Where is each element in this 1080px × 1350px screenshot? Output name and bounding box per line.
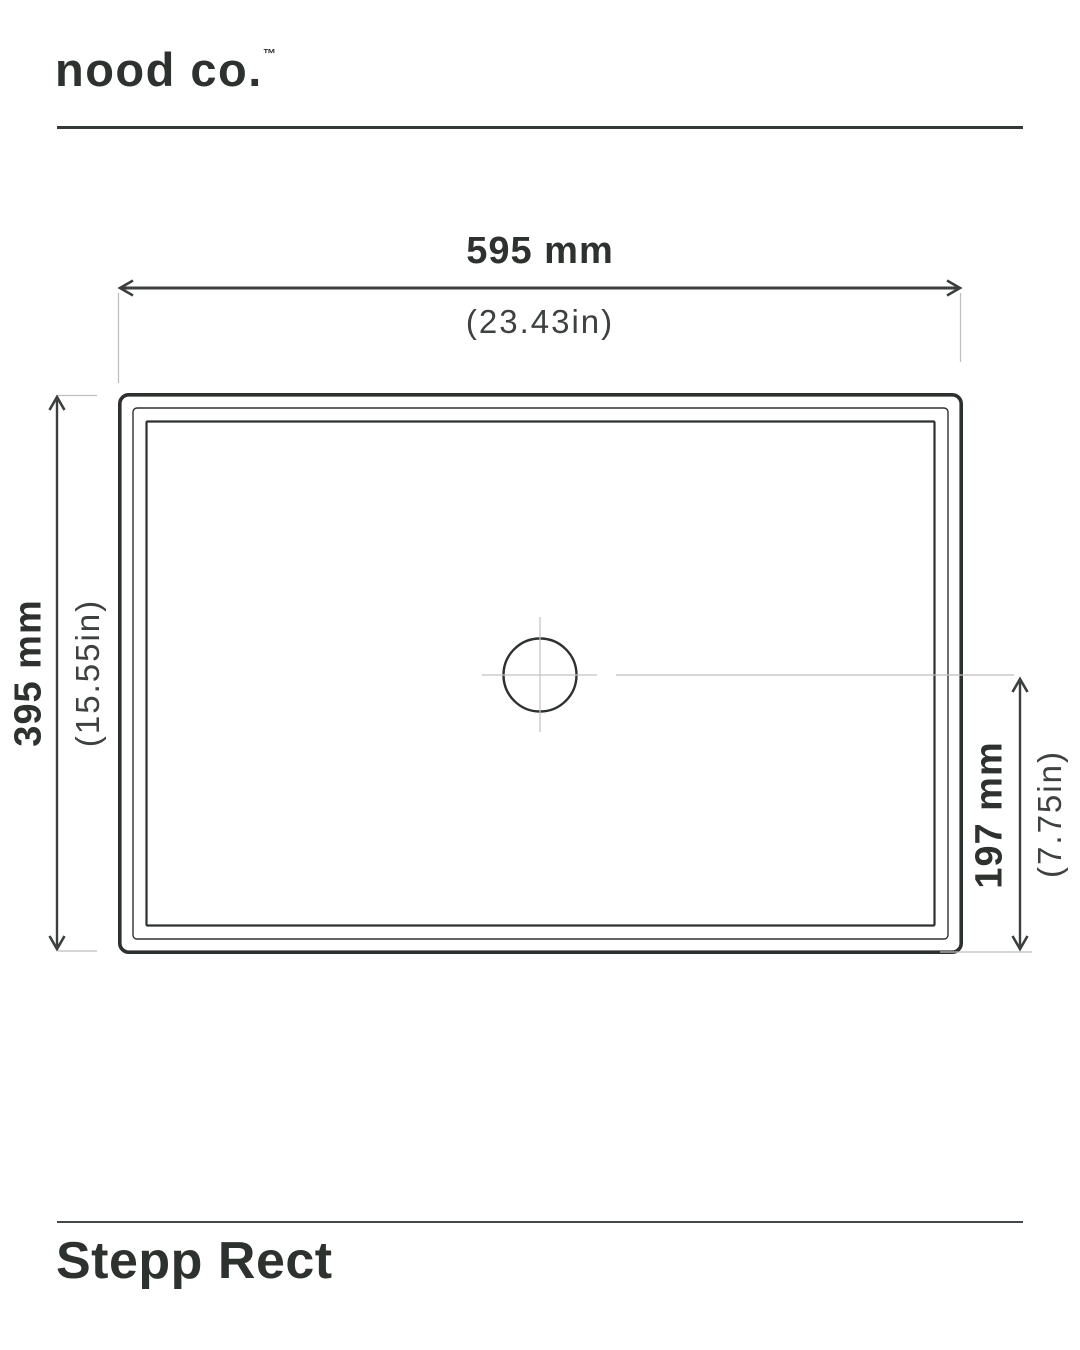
spec-sheet-page: nood co.™ 595 mm (23.43in) 395 mm (15.55… bbox=[0, 0, 1080, 1350]
technical-drawing bbox=[0, 0, 1080, 1350]
footer-divider bbox=[57, 1221, 1023, 1223]
product-title: Stepp Rect bbox=[56, 1231, 333, 1291]
